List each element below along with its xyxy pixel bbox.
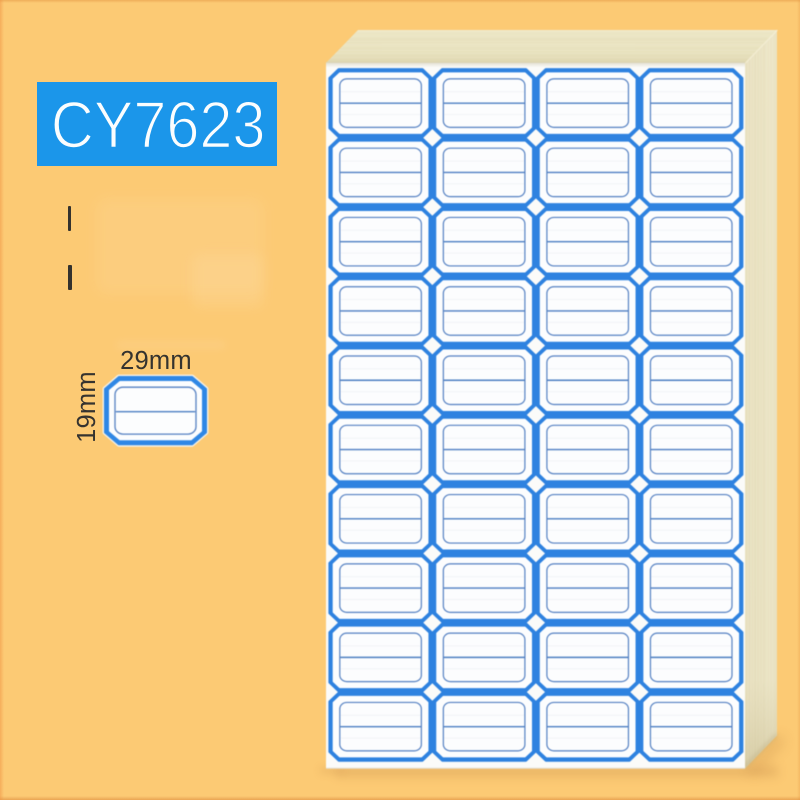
svg-text:CY7623: CY7623	[50, 89, 265, 163]
